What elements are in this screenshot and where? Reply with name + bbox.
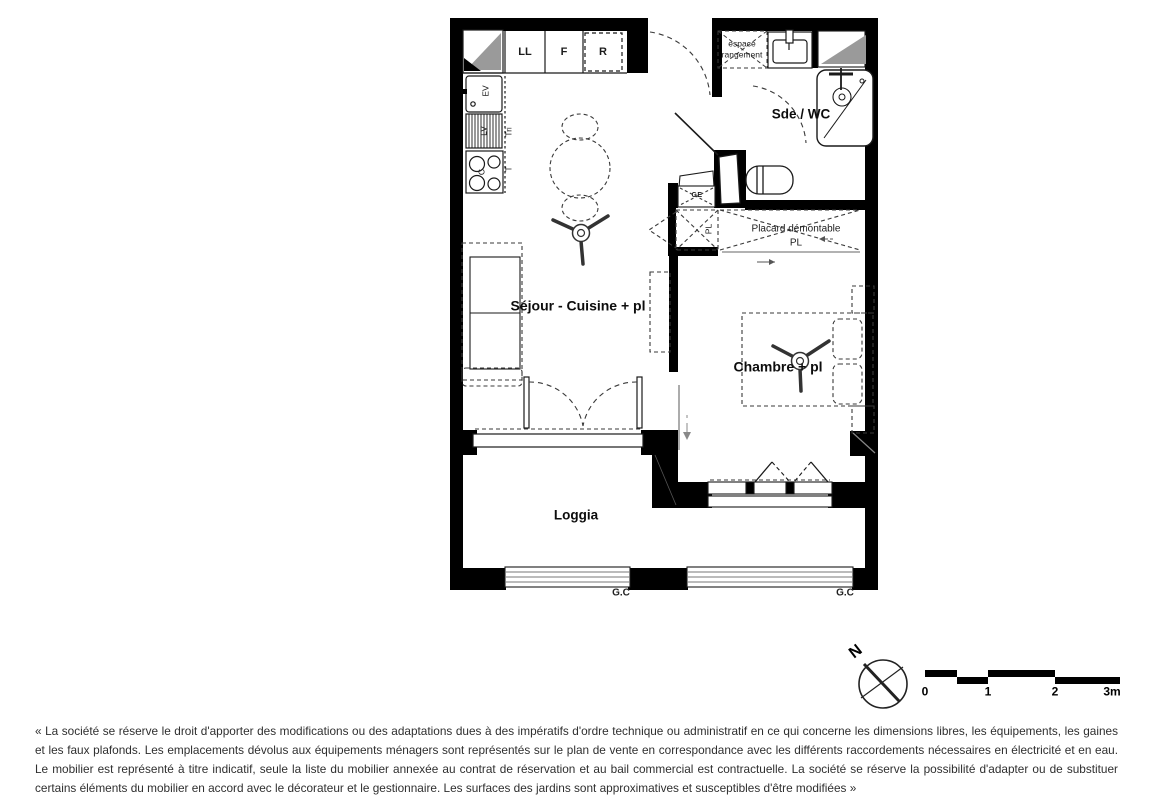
- technical-shaft-top-left: [463, 30, 503, 73]
- kitchen-unit-f-label: F: [561, 46, 568, 58]
- sejour-closet: [650, 272, 670, 352]
- worktop-label: T: [504, 166, 513, 171]
- technical-shaft-top-right: [818, 31, 866, 67]
- ge-duct-box: [678, 171, 715, 207]
- wall-top-left: [450, 18, 648, 31]
- wall-basin-divider: [812, 31, 818, 68]
- chambre-doorway-marker: [679, 385, 691, 450]
- duct-label: GE: [691, 192, 702, 200]
- compass-cross: [861, 667, 903, 698]
- hall-closet-label: PL: [704, 224, 713, 234]
- storage-space-label-1: espace: [728, 39, 755, 48]
- wall-hall-left: [712, 31, 722, 97]
- compass: [859, 660, 907, 708]
- scale-tick-2: 2: [1052, 685, 1059, 698]
- chair-bottom: [562, 195, 598, 221]
- storage-space-label-2: rangement: [722, 50, 763, 59]
- scale-tick-3m: 3m: [1103, 685, 1120, 698]
- wall-sde-bottom: [745, 200, 878, 210]
- entrance-door: [650, 32, 718, 155]
- legal-disclaimer: « La société se réserve le droit d'appor…: [35, 722, 1118, 798]
- arrow-left: [819, 236, 833, 242]
- sink-label: EV: [481, 85, 490, 96]
- scale-tick-1: 1: [985, 685, 992, 698]
- wc-door-leaf: [719, 154, 740, 204]
- wall-ge-stub: [668, 183, 678, 208]
- window-opening-symbols: [755, 462, 828, 482]
- railing-label-left: G.C: [612, 588, 630, 599]
- railing-right: [687, 567, 853, 587]
- floor-plan-drawing: [0, 0, 1150, 800]
- washbasin: [768, 30, 812, 68]
- wall-chambre-bottom-left: [678, 482, 712, 508]
- wall-kitchen-stub: [627, 31, 648, 73]
- floor-plan-page: LL F R EV LV Tri C T GE PL espace rangem…: [0, 0, 1150, 800]
- room-label-loggia: Loggia: [554, 509, 598, 524]
- railing-left: [505, 567, 630, 587]
- chair-top: [562, 114, 598, 140]
- wall-left: [450, 18, 463, 585]
- french-doors: [473, 377, 643, 447]
- dining-set: [550, 114, 610, 221]
- railing-label-right: G.C: [836, 588, 854, 599]
- sorting-label: Tri: [504, 127, 513, 137]
- down-arrow-icon: [683, 432, 691, 440]
- kitchen-unit-r-label: R: [599, 46, 607, 58]
- sofa: [462, 243, 522, 386]
- cooktop-label: C: [477, 169, 486, 175]
- dishwasher-label: LV: [479, 126, 488, 136]
- placard-pl-label: PL: [790, 238, 802, 249]
- ceiling-light-sejour: [553, 216, 608, 264]
- dining-table: [550, 138, 610, 198]
- toilet: [746, 166, 793, 194]
- room-label-sde-wc: Sde / WC: [772, 108, 831, 123]
- chambre-window: [708, 462, 832, 507]
- arrow-right: [757, 259, 775, 265]
- wall-top-right: [712, 18, 878, 31]
- scale-bar: [925, 670, 1120, 684]
- room-label-sejour: Séjour - Cuisine + pl: [511, 298, 646, 313]
- room-label-chambre: Chambre + pl: [733, 359, 822, 374]
- wall-loggia-bottom-mid: [628, 568, 688, 590]
- wall-chambre-bottom-right: [828, 482, 878, 508]
- kitchen-unit-ll-label: LL: [518, 46, 531, 58]
- wall-loggia-bottom-right: [852, 568, 878, 590]
- wall-loggia-bottom-left: [450, 568, 506, 590]
- scale-tick-0: 0: [922, 685, 929, 698]
- wall-sejour-bottom-right: [641, 430, 678, 455]
- placard-demontable-label: Placard démontable: [752, 224, 841, 235]
